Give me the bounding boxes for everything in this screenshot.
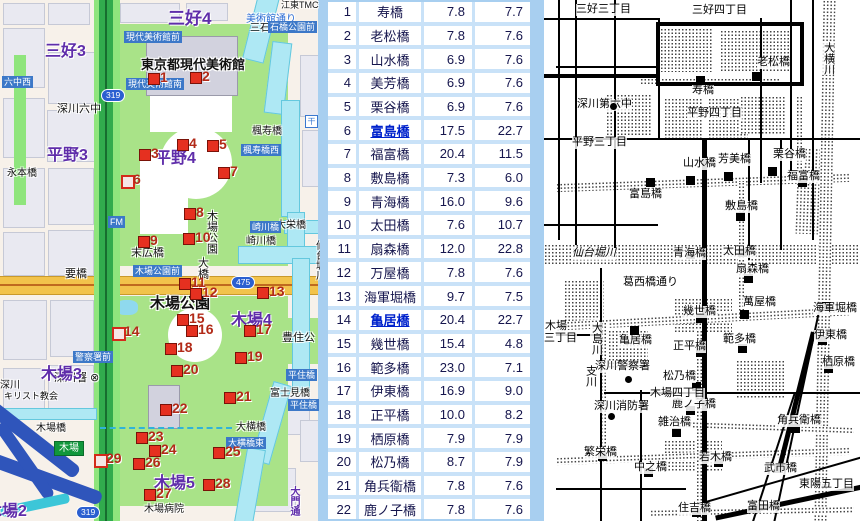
map-marker-1[interactable] [148, 73, 160, 85]
bridge-name: 角兵衛橋 [364, 476, 416, 495]
color-route-map[interactable]: 六中西現代美術館前現代美術館南石橋公園前楓寿橋西崎川橋FM木場公園前警察署前平住… [0, 0, 320, 521]
row-number: 11 [328, 239, 356, 259]
row-number: 12 [328, 262, 356, 282]
row-number: 9 [328, 191, 356, 211]
width-value: 7.9 [475, 452, 530, 472]
length-value: 17.5 [424, 120, 472, 140]
width-value: 6.0 [475, 168, 530, 188]
bridge-label: 扇森橋 [736, 264, 769, 276]
map-marker-5[interactable] [207, 140, 219, 152]
district-label: 三好4 [168, 4, 211, 29]
map-label: キリスト教会 [4, 392, 58, 401]
bridge-name-cell: 栗谷橋 [359, 97, 421, 117]
row-number: 6 [328, 120, 356, 140]
map-marker-number: 19 [247, 349, 263, 363]
width-value: 7.6 [475, 499, 530, 519]
map-marker-17[interactable] [244, 325, 256, 337]
row-number: 4 [328, 73, 356, 93]
row-number: 16 [328, 357, 356, 377]
district-label: 東陽五丁目 [799, 479, 854, 491]
bridge-name-link[interactable]: 亀居橋 [370, 310, 409, 329]
bridge-name-cell: 伊東橋 [359, 381, 421, 401]
map-blk [3, 300, 47, 360]
map-marker-25[interactable] [213, 447, 225, 459]
bridge-name-cell: 海軍堀橋 [359, 286, 421, 306]
bridge-label: 老松橋 [757, 57, 790, 69]
width-value: 7.6 [475, 262, 530, 282]
length-value: 12.0 [424, 239, 472, 259]
bridge-name: 扇森橋 [370, 239, 409, 258]
width-value: 9.0 [475, 381, 530, 401]
screenshot-root: 六中西現代美術館前現代美術館南石橋公園前楓寿橋西崎川橋FM木場公園前警察署前平住… [0, 0, 860, 521]
bridge-label: 正平橋 [673, 341, 706, 353]
district-label: 三好三丁目 [576, 4, 631, 16]
street-line [575, 0, 577, 245]
length-value: 7.8 [424, 499, 472, 519]
map-label: 崎川橋 [246, 237, 276, 248]
width-value: 10.7 [475, 215, 530, 235]
row-number: 22 [328, 499, 356, 519]
map-marker-27[interactable] [144, 489, 156, 501]
length-value: 10.0 [424, 405, 472, 425]
bridge-label: 海軍堀橋 [813, 303, 857, 315]
row-number: 13 [328, 286, 356, 306]
district-label: 平野四丁目 [687, 108, 742, 120]
map-marker-19[interactable] [235, 352, 247, 364]
district-label: 深川警察署 [595, 361, 650, 373]
map-marker-number: 27 [156, 486, 172, 500]
map-marker-number: 25 [225, 444, 241, 458]
bridge-name-cell: 角兵衛橋 [359, 476, 421, 496]
length-value: 23.0 [424, 357, 472, 377]
map-marker-number: 26 [145, 455, 161, 469]
map-marker-22[interactable] [160, 404, 172, 416]
map-marker-number: 7 [230, 164, 238, 178]
length-value: 7.8 [424, 476, 472, 496]
length-value: 6.9 [424, 97, 472, 117]
width-value: 7.7 [475, 2, 530, 22]
map-marker-number: 9 [150, 233, 158, 247]
bridge-name-cell: 青海橋 [359, 191, 421, 211]
bridge-label: 山水橋 [683, 158, 716, 170]
map-marker-20[interactable] [171, 365, 183, 377]
map-symbol-box: 干 [305, 115, 318, 128]
map-marker-number: 17 [256, 322, 272, 336]
district-label: 木場3 [41, 360, 82, 384]
map-label: 木場橋 [36, 424, 66, 435]
map-marker-number: 20 [183, 362, 199, 376]
bridge-name: 福富橋 [370, 144, 409, 163]
main-road [702, 140, 707, 521]
map-marker-8[interactable] [184, 208, 196, 220]
bridge-label: 繁栄橋 [584, 447, 617, 459]
main-road [656, 22, 804, 86]
map-marker-number: 1 [160, 70, 168, 84]
bridge-label: 敷島橋 [725, 201, 758, 213]
bridge-label: 中之橋 [634, 462, 667, 474]
bridge-name: 美芳橋 [370, 73, 409, 92]
row-number: 14 [328, 310, 356, 330]
city-block [564, 280, 604, 324]
width-value: 7.6 [475, 26, 530, 46]
map-marker-number: 8 [196, 205, 204, 219]
map-marker-number: 14 [124, 324, 140, 338]
map-marker-7[interactable] [218, 167, 230, 179]
map-label: 永本橋 [7, 169, 37, 180]
bridge-name-cell: 老松橋 [359, 26, 421, 46]
bus-stop-label: 石橋公園前 [268, 21, 317, 33]
district-label: 三好3 [45, 37, 86, 61]
row-number: 18 [328, 405, 356, 425]
row-number: 2 [328, 26, 356, 46]
bridge-name-cell: 正平橋 [359, 405, 421, 425]
row-number: 5 [328, 97, 356, 117]
map-label: 楓寿橋 [252, 127, 282, 138]
map-marker-number: 2 [202, 69, 210, 83]
map-marker-2[interactable] [190, 72, 202, 84]
row-number: 17 [328, 381, 356, 401]
district-label: 平野3 [47, 141, 88, 165]
bridge-name: 松乃橋 [370, 452, 409, 471]
street-line [558, 0, 560, 240]
map-label: 富士見橋 [270, 389, 310, 400]
map-marker-13[interactable] [257, 287, 269, 299]
bridge-name-cell: 鹿ノ子橋 [359, 499, 421, 519]
width-value: 4.8 [475, 334, 530, 354]
width-value: 7.9 [475, 428, 530, 448]
bridge-label: 芳美橋 [718, 154, 751, 166]
bus-stop-label: FM [108, 216, 125, 228]
row-number: 20 [328, 452, 356, 472]
bridge-label: 栖原橋 [822, 357, 855, 369]
map-label: 末広橋 [131, 248, 164, 260]
street-line [556, 488, 686, 490]
map-label: 大横橋 [236, 423, 266, 434]
bridge-name: 敷島橋 [370, 168, 409, 187]
bridge-name: 範多橋 [370, 358, 409, 377]
bridge-label: 福富橋 [787, 171, 820, 183]
district-label: 木場四丁目 [650, 388, 705, 400]
station-label-kiba: 木場 [54, 441, 84, 456]
bridge-label: 若木橋 [699, 452, 732, 464]
map-blk [48, 168, 94, 225]
district-label: 大門通 [286, 486, 301, 516]
bridge-name-cell: 福富橋 [359, 144, 421, 164]
map-label: 仙台堀川 [313, 240, 320, 280]
map-label: 要橋 [65, 269, 87, 281]
bridge-label: 萬屋橋 [743, 297, 776, 309]
bridge-name: 正平橋 [370, 405, 409, 424]
bridge-name: 栖原橋 [370, 429, 409, 448]
map-marker-4[interactable] [177, 139, 189, 151]
row-number: 7 [328, 144, 356, 164]
bridge-label: 角兵衛橋 [777, 415, 821, 427]
bridge-name: 伊東橋 [370, 381, 409, 400]
map-marker-number: 28 [215, 476, 231, 490]
map-marker-number: 6 [133, 172, 141, 186]
width-value: 7.6 [475, 73, 530, 93]
bridge-label: 住吉橋 [678, 503, 711, 515]
street-line [544, 18, 658, 20]
district-label: 仙台堀川 [572, 248, 616, 260]
bridge-label: 寿橋 [692, 85, 714, 97]
district-label: 平野三丁目 [572, 137, 627, 149]
facility-dot [610, 103, 617, 110]
bridge-label: 伊東橋 [814, 330, 847, 342]
bus-stop-label: 楓寿橋西 [241, 144, 281, 156]
bus-stop-label: 平住橋 [286, 369, 317, 381]
bridge-name-link[interactable]: 富島橋 [370, 121, 409, 140]
row-number: 21 [328, 476, 356, 496]
map-marker-9[interactable] [138, 236, 150, 248]
bridge-name: 太田橋 [370, 215, 409, 234]
bridge-name: 海軍堀橋 [364, 287, 416, 306]
bridge-name-cell: 寿橋 [359, 2, 421, 22]
bridge-label: 青海橋 [673, 248, 706, 260]
route-shield: 319 [76, 506, 100, 519]
length-value: 6.9 [424, 73, 472, 93]
length-value: 7.3 [424, 168, 472, 188]
width-value: 22.8 [475, 239, 530, 259]
facility-dot [625, 376, 632, 383]
district-label: 木場2 [0, 497, 27, 521]
main-road [544, 74, 658, 78]
length-value: 7.6 [424, 215, 472, 235]
length-value: 7.8 [424, 26, 472, 46]
width-value: 22.7 [475, 310, 530, 330]
bridge-data-table: 1寿橋7.87.72老松橋7.87.63山水橋6.97.64美芳橋6.97.65… [318, 0, 544, 521]
district-label: 大島川 [590, 322, 602, 355]
width-value: 7.6 [475, 476, 530, 496]
length-value: 7.8 [424, 2, 472, 22]
bridge-label: 武市橋 [764, 463, 797, 475]
street-line [544, 224, 658, 226]
map-marker-12[interactable] [190, 288, 202, 300]
street-line [604, 392, 860, 394]
map-label: 江東TMC [281, 1, 319, 10]
map-marker-number: 22 [172, 401, 188, 415]
canal [796, 96, 804, 178]
map-marker-3[interactable] [139, 149, 151, 161]
bridge-mark [646, 178, 655, 187]
length-value: 7.9 [424, 428, 472, 448]
map-groadC [105, 0, 107, 521]
width-value: 7.1 [475, 357, 530, 377]
map-marker-number: 12 [202, 285, 218, 299]
bridge-mark [736, 212, 745, 221]
length-value: 6.9 [424, 49, 472, 69]
row-number: 3 [328, 49, 356, 69]
bridge-label: 鹿ノ子橋 [672, 399, 716, 411]
bridge-name-cell: 万屋橋 [359, 262, 421, 282]
map-marker-number: 24 [161, 442, 177, 456]
district-label: 大横川 [822, 42, 834, 75]
district-label: 三好四丁目 [692, 5, 747, 17]
length-value: 20.4 [424, 144, 472, 164]
bridge-label: 富島橋 [629, 189, 662, 201]
map-dash [100, 427, 232, 429]
bridge-mark [768, 167, 777, 176]
district-label: 支川 [584, 365, 596, 387]
bridge-label: 栗谷橋 [773, 149, 806, 161]
width-value: 11.5 [475, 144, 530, 164]
bridge-name-cell: 山水橋 [359, 49, 421, 69]
map-label: 東京都現代美術館 [141, 58, 245, 72]
street-line [556, 66, 656, 68]
bus-stop-label: 警察署前 [73, 351, 113, 363]
map-marker-number: 13 [269, 284, 285, 298]
row-number: 15 [328, 334, 356, 354]
bus-stop-label: 木場公園前 [133, 265, 182, 277]
monochrome-bridge-map[interactable]: 寿橋老松橋山水橋芳美橋栗谷橋福富橋富島橋敷島橋青海橋太田橋扇森橋萬屋橋海軍堀橋幾… [544, 0, 860, 521]
map-marker-number: 5 [219, 137, 227, 151]
map-blk [3, 3, 45, 25]
street-line [614, 0, 616, 248]
bridge-name: 幾世橋 [370, 334, 409, 353]
bridge-mark [740, 310, 749, 319]
map-marker-number: 18 [177, 340, 193, 354]
map-marker-number: 10 [195, 230, 211, 244]
map-blk [50, 300, 94, 357]
district-label: 深川消防署 [594, 401, 649, 413]
map-marker-10[interactable] [183, 233, 195, 245]
city-block [740, 96, 786, 134]
row-number: 8 [328, 168, 356, 188]
route-shield: 319 [101, 89, 125, 102]
map-marker-number: 4 [189, 136, 197, 150]
map-blk [48, 3, 90, 25]
bridge-name-cell: 敷島橋 [359, 168, 421, 188]
length-value: 7.8 [424, 262, 472, 282]
length-value: 9.7 [424, 286, 472, 306]
district-label: 三丁目 [544, 333, 577, 345]
length-value: 15.4 [424, 334, 472, 354]
map-label: 豊住公 [282, 333, 315, 345]
bridge-name-cell: 松乃橋 [359, 452, 421, 472]
bridge-mark [672, 428, 681, 437]
length-value: 20.4 [424, 310, 472, 330]
bridge-label: 幾世橋 [683, 306, 716, 318]
bridge-name-cell: 富島橋 [359, 120, 421, 140]
district-label: 木場 [545, 321, 567, 333]
bridge-label: 雑治橋 [658, 417, 691, 429]
bridge-name-cell: 亀居橋 [359, 310, 421, 330]
width-value: 7.6 [475, 49, 530, 69]
bridge-name: 栗谷橋 [370, 97, 409, 116]
map-label: 深川 [0, 381, 20, 392]
bus-stop-label: 六中西 [2, 76, 33, 88]
bridge-name: 万屋橋 [370, 263, 409, 282]
street-line [600, 268, 602, 521]
map-marker-23[interactable] [136, 432, 148, 444]
width-value: 7.6 [475, 97, 530, 117]
width-value: 7.5 [475, 286, 530, 306]
row-number: 1 [328, 2, 356, 22]
width-value: 8.2 [475, 405, 530, 425]
bridge-label: 太田橋 [723, 246, 756, 258]
length-value: 8.7 [424, 452, 472, 472]
bridge-mark [724, 172, 733, 181]
bus-stop-label: 現代美術館前 [124, 31, 182, 43]
bridge-name: 山水橋 [370, 50, 409, 69]
bridge-name-cell: 扇森橋 [359, 239, 421, 259]
bridge-name-cell: 太田橋 [359, 215, 421, 235]
map-blk [300, 55, 320, 117]
bus-stop-label: 平住橋 [288, 399, 319, 411]
width-value: 22.7 [475, 120, 530, 140]
bridge-name-cell: 範多橋 [359, 357, 421, 377]
bridge-name-cell: 幾世橋 [359, 334, 421, 354]
bridge-name: 鹿ノ子橋 [364, 500, 416, 519]
bridge-mark [686, 176, 695, 185]
bridge-label: 範多橋 [723, 334, 756, 346]
map-marker-26[interactable] [133, 458, 145, 470]
bridge-table-grid: 1寿橋7.87.72老松橋7.87.63山水橋6.97.64美芳橋6.97.65… [328, 2, 530, 519]
row-number: 19 [328, 428, 356, 448]
bridge-name-cell: 栖原橋 [359, 428, 421, 448]
row-number: 10 [328, 215, 356, 235]
width-value: 9.6 [475, 191, 530, 211]
bridge-name: 青海橋 [370, 192, 409, 211]
length-value: 16.0 [424, 191, 472, 211]
map-label: 木場病院 [144, 505, 184, 516]
bus-stop-label: 崎川橋 [250, 221, 281, 233]
bridge-label: 松乃橋 [663, 371, 696, 383]
map-marker-28[interactable] [203, 479, 215, 491]
map-marker-number: 21 [236, 389, 252, 403]
map-marker-21[interactable] [224, 392, 236, 404]
street-line [812, 0, 814, 240]
bridge-label: 亀居橋 [619, 335, 652, 347]
map-blk [300, 420, 320, 462]
length-value: 16.9 [424, 381, 472, 401]
map-blk [3, 232, 45, 276]
bridge-label: 富田橋 [747, 501, 780, 513]
map-marker-number: 29 [106, 451, 122, 465]
map-marker-number: 16 [198, 322, 214, 336]
map-marker-16[interactable] [186, 325, 198, 337]
map-water [281, 100, 300, 217]
bridge-mark [752, 72, 761, 81]
bridge-name: 老松橋 [370, 26, 409, 45]
district-label: 深川第六中 [577, 99, 632, 111]
bridge-name: 寿橋 [377, 2, 403, 21]
district-label: 葛西橋通り [623, 277, 678, 289]
map-marker-number: 3 [151, 146, 159, 160]
bridge-name-cell: 美芳橋 [359, 73, 421, 93]
map-label: 深川六中 [57, 104, 101, 116]
map-marker-18[interactable] [165, 343, 177, 355]
facility-dot [608, 413, 615, 420]
route-shield: 475 [231, 276, 255, 289]
